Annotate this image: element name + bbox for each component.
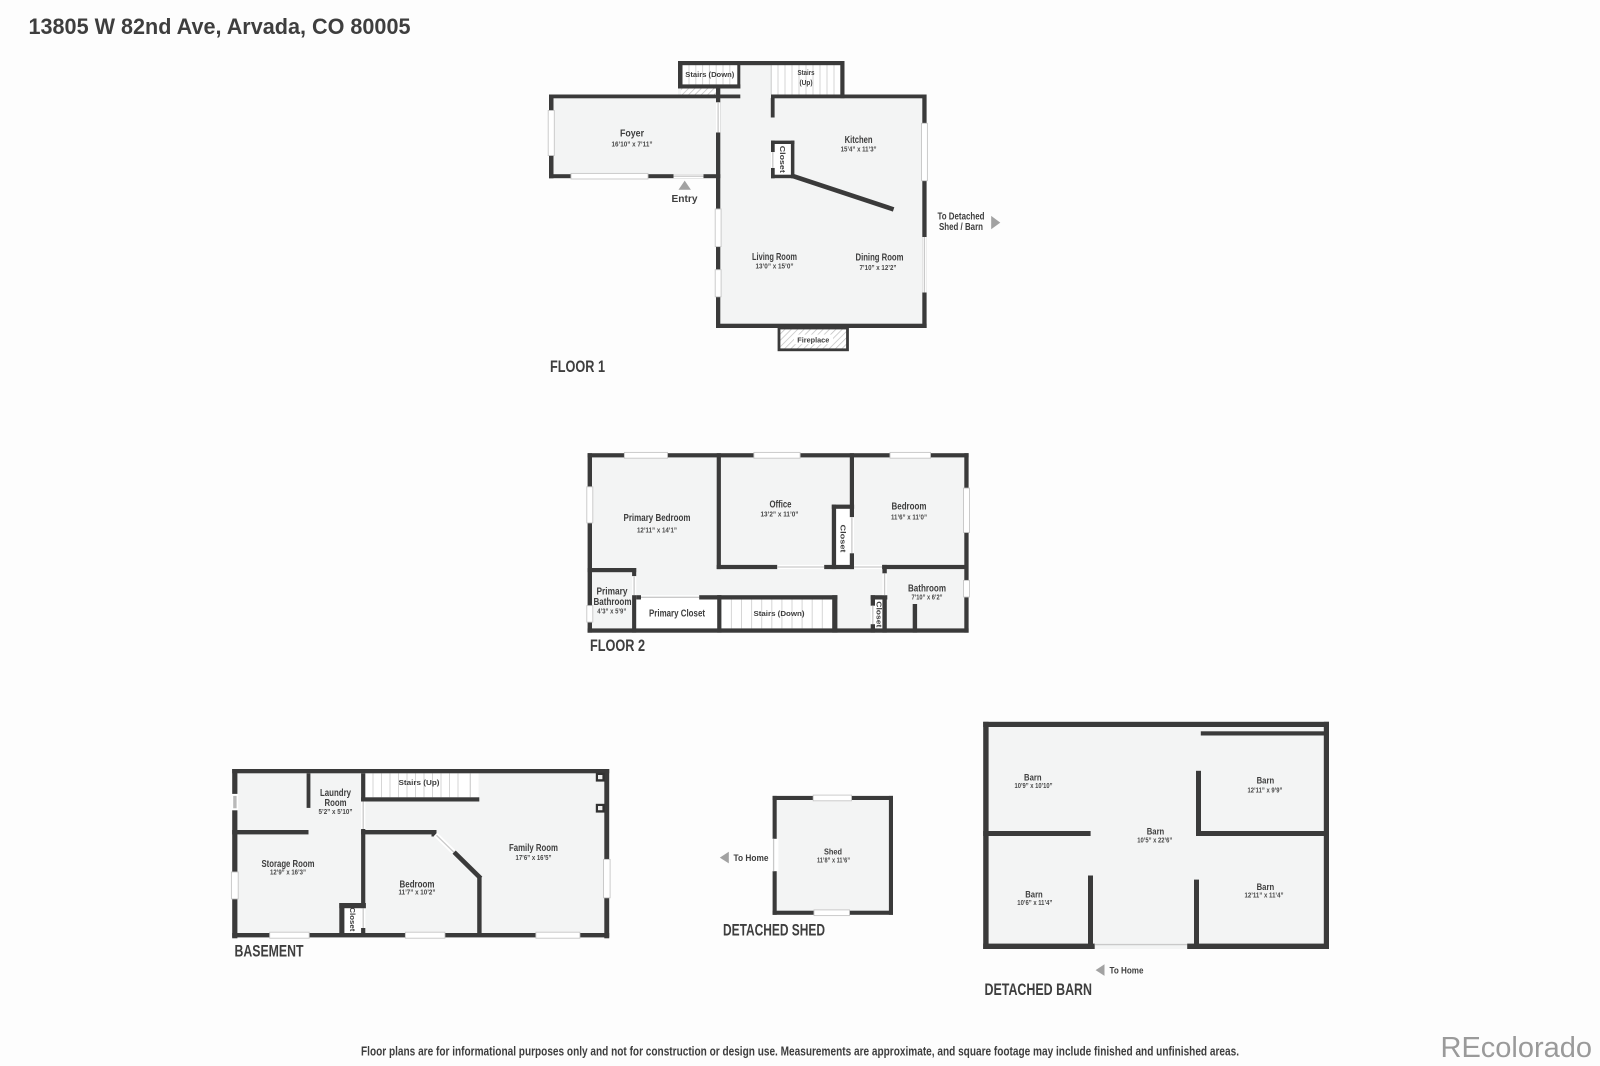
svg-text:Living Room: Living Room (752, 252, 797, 263)
svg-text:13’2” x 11’0”: 13’2” x 11’0” (761, 511, 799, 518)
svg-text:Closet: Closet (348, 907, 357, 932)
svg-text:Room: Room (325, 798, 347, 809)
svg-text:Storage Room: Storage Room (262, 859, 315, 870)
svg-text:15’4” x 11’3”: 15’4” x 11’3” (841, 146, 877, 153)
svg-text:Entry: Entry (672, 194, 698, 205)
svg-text:13805 W 82nd Ave, Arvada, CO 8: 13805 W 82nd Ave, Arvada, CO 80005 (29, 14, 411, 39)
svg-text:Stairs: Stairs (798, 68, 815, 77)
svg-text:REcolorado: REcolorado (1441, 1032, 1593, 1064)
svg-text:Shed: Shed (824, 847, 842, 857)
svg-text:7’10” x 6’2”: 7’10” x 6’2” (912, 595, 943, 602)
svg-text:Primary: Primary (597, 587, 628, 598)
svg-text:Barn: Barn (1257, 776, 1275, 787)
svg-text:Dining Room: Dining Room (856, 253, 904, 264)
svg-text:Shed / Barn: Shed / Barn (939, 222, 983, 233)
svg-text:Floor plans are for informatio: Floor plans are for informational purpos… (361, 1043, 1239, 1058)
svg-text:BASEMENT: BASEMENT (235, 941, 304, 960)
svg-text:To Home: To Home (734, 853, 769, 863)
svg-text:Family Room: Family Room (509, 843, 558, 854)
svg-text:Stairs (Up): Stairs (Up) (399, 778, 441, 787)
svg-text:FLOOR 2: FLOOR 2 (590, 636, 645, 655)
svg-text:12’11” x 11’4”: 12’11” x 11’4” (1245, 892, 1284, 899)
svg-text:11’7” x 10’2”: 11’7” x 10’2” (399, 890, 436, 897)
svg-text:Bathroom: Bathroom (908, 584, 946, 595)
svg-text:Kitchen: Kitchen (845, 135, 873, 146)
svg-text:7’10” x 12’2”: 7’10” x 12’2” (860, 265, 897, 272)
svg-text:FLOOR 1: FLOOR 1 (550, 357, 605, 376)
svg-text:12’11” x 14’1”: 12’11” x 14’1” (637, 528, 677, 535)
svg-text:13’0” x 15’0”: 13’0” x 15’0” (756, 264, 794, 271)
svg-text:DETACHED BARN: DETACHED BARN (985, 980, 1093, 999)
svg-text:Primary Closet: Primary Closet (649, 609, 706, 620)
svg-text:Primary Bedroom: Primary Bedroom (624, 513, 691, 524)
svg-text:12’9” x 16’3”: 12’9” x 16’3” (270, 870, 306, 877)
svg-text:5’2” x 5’10”: 5’2” x 5’10” (319, 809, 353, 816)
svg-text:12’11” x 9’9”: 12’11” x 9’9” (1248, 788, 1283, 795)
svg-text:Barn: Barn (1147, 827, 1165, 838)
svg-text:10’5” x 22’6”: 10’5” x 22’6” (1137, 838, 1172, 845)
svg-text:Bedroom: Bedroom (892, 502, 927, 513)
svg-text:10’9” x 10’10”: 10’9” x 10’10” (1015, 783, 1053, 790)
svg-text:10’6” x 11’4”: 10’6” x 11’4” (1017, 900, 1052, 907)
svg-text:Fireplace: Fireplace (797, 335, 829, 344)
svg-text:To Home: To Home (1110, 965, 1144, 975)
svg-text:4’3” x 5’9”: 4’3” x 5’9” (597, 609, 626, 616)
svg-text:Office: Office (770, 500, 792, 511)
svg-text:11’8” x 11’6”: 11’8” x 11’6” (817, 858, 850, 865)
svg-text:Barn: Barn (1024, 772, 1042, 783)
svg-text:Foyer: Foyer (620, 129, 644, 140)
svg-text:Stairs (Down): Stairs (Down) (685, 70, 735, 79)
svg-text:Stairs (Down): Stairs (Down) (754, 609, 806, 618)
svg-text:Bathroom: Bathroom (594, 597, 632, 608)
svg-text:Barn: Barn (1257, 882, 1275, 893)
svg-text:(Up): (Up) (800, 78, 813, 87)
svg-text:To Detached: To Detached (938, 212, 985, 223)
svg-text:16’10” x 7’11”: 16’10” x 7’11” (612, 142, 653, 149)
svg-text:DETACHED SHED: DETACHED SHED (723, 921, 825, 940)
svg-text:Closet: Closet (874, 601, 883, 628)
svg-text:11’6” x 11’0”: 11’6” x 11’0” (891, 515, 927, 522)
svg-text:Barn: Barn (1025, 889, 1043, 900)
svg-text:17’6” x 16’5”: 17’6” x 16’5” (516, 855, 552, 862)
svg-text:Closet: Closet (839, 525, 848, 554)
svg-text:Closet: Closet (778, 146, 787, 174)
